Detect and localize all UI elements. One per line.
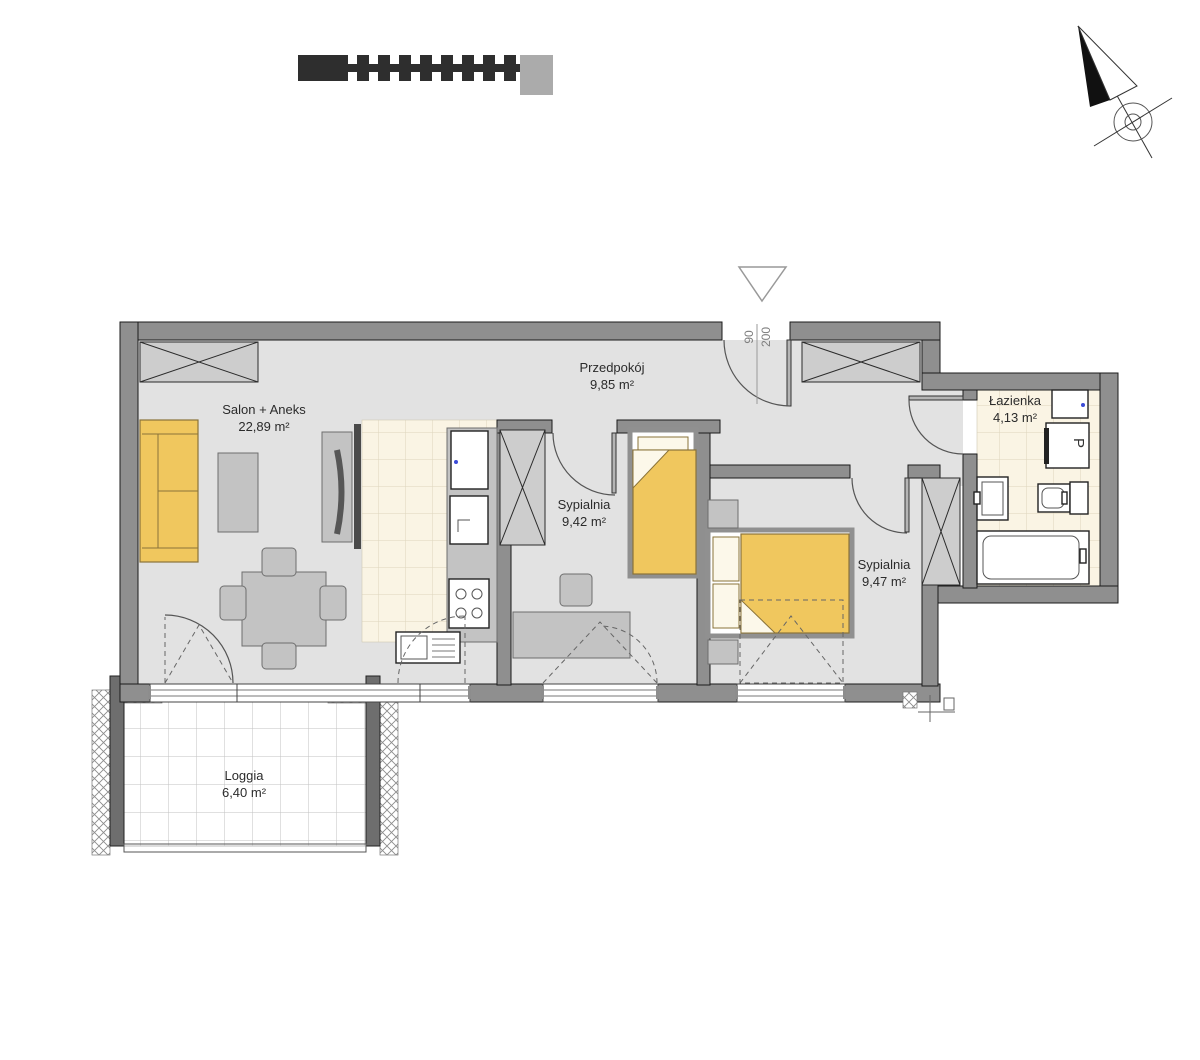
- room-label-loggia: Loggia 6,40 m²: [222, 767, 266, 801]
- floor-plan-canvas: P: [0, 0, 1200, 1060]
- north-arrow-icon: [1078, 26, 1172, 158]
- fridge-icon: [451, 431, 488, 489]
- pillow-icon: [713, 537, 739, 581]
- kitchen-sink-icon: [396, 632, 460, 663]
- adjacent-structure: [298, 55, 553, 95]
- kitchen-counter-icon: [447, 428, 497, 642]
- room-name: Loggia: [222, 767, 266, 784]
- chair-icon: [262, 643, 296, 669]
- room-label-sypialnia-2: Sypialnia 9,47 m²: [858, 556, 911, 590]
- door-width-label: 90: [742, 330, 756, 343]
- room-area: 6,40 m²: [222, 784, 266, 801]
- tv-cabinet-icon: [322, 424, 361, 549]
- room-area: 9,42 m²: [558, 513, 611, 530]
- bedroom1-window: [543, 684, 658, 702]
- desk-chair-icon: [560, 574, 592, 606]
- room-area: 9,85 m²: [579, 376, 644, 393]
- column-hatch: [500, 430, 545, 545]
- room-area: 4,13 m²: [989, 409, 1041, 426]
- floor-plan-drawing: P: [0, 0, 1200, 1060]
- hall-wardrobe-icon: [802, 342, 920, 382]
- chair-icon: [320, 586, 346, 620]
- tv-wall-panel: [354, 424, 361, 549]
- sofa-icon: [140, 420, 198, 562]
- coffee-table-icon: [218, 453, 258, 532]
- room-name: Sypialnia: [858, 556, 911, 573]
- stove-icon: [449, 579, 489, 628]
- room-name: Sypialnia: [558, 496, 611, 513]
- bedroom2-window: [737, 684, 845, 702]
- loggia-window: [150, 684, 470, 702]
- nightstand-icon: [708, 640, 738, 664]
- washing-machine-icon: P: [1044, 423, 1089, 468]
- bathtub-icon: [977, 531, 1089, 584]
- room-label-przedpokoj: Przedpokój 9,85 m²: [579, 359, 644, 393]
- double-bed-icon: [708, 530, 852, 636]
- toilet-icon: [1038, 482, 1088, 514]
- single-bed-icon: [630, 430, 696, 576]
- room-label-lazienka: Łazienka 4,13 m²: [989, 392, 1041, 426]
- pillow-icon: [713, 584, 739, 628]
- room-name: Przedpokój: [579, 359, 644, 376]
- tap-mark: [1081, 403, 1085, 407]
- room-name: Salon + Aneks: [222, 401, 305, 418]
- cistern: [1070, 482, 1088, 514]
- chair-icon: [262, 548, 296, 576]
- column-hatch: [140, 342, 258, 382]
- nightstand-icon: [708, 500, 738, 528]
- washbasin-icon: [974, 477, 1008, 520]
- chair-icon: [220, 586, 246, 620]
- room-name: Łazienka: [989, 392, 1041, 409]
- tap-mark: [454, 460, 458, 464]
- svg-text:P: P: [1070, 438, 1087, 448]
- room-label-sypialnia-1: Sypialnia 9,42 m²: [558, 496, 611, 530]
- loggia-structure: [92, 676, 398, 855]
- door-height-label: 200: [759, 327, 773, 347]
- column-hatch: [922, 478, 960, 585]
- room-label-salon: Salon + Aneks 22,89 m²: [222, 401, 305, 435]
- room-area: 9,47 m²: [858, 573, 911, 590]
- room-area: 22,89 m²: [222, 418, 305, 435]
- entrance-triangle-icon: [739, 267, 786, 301]
